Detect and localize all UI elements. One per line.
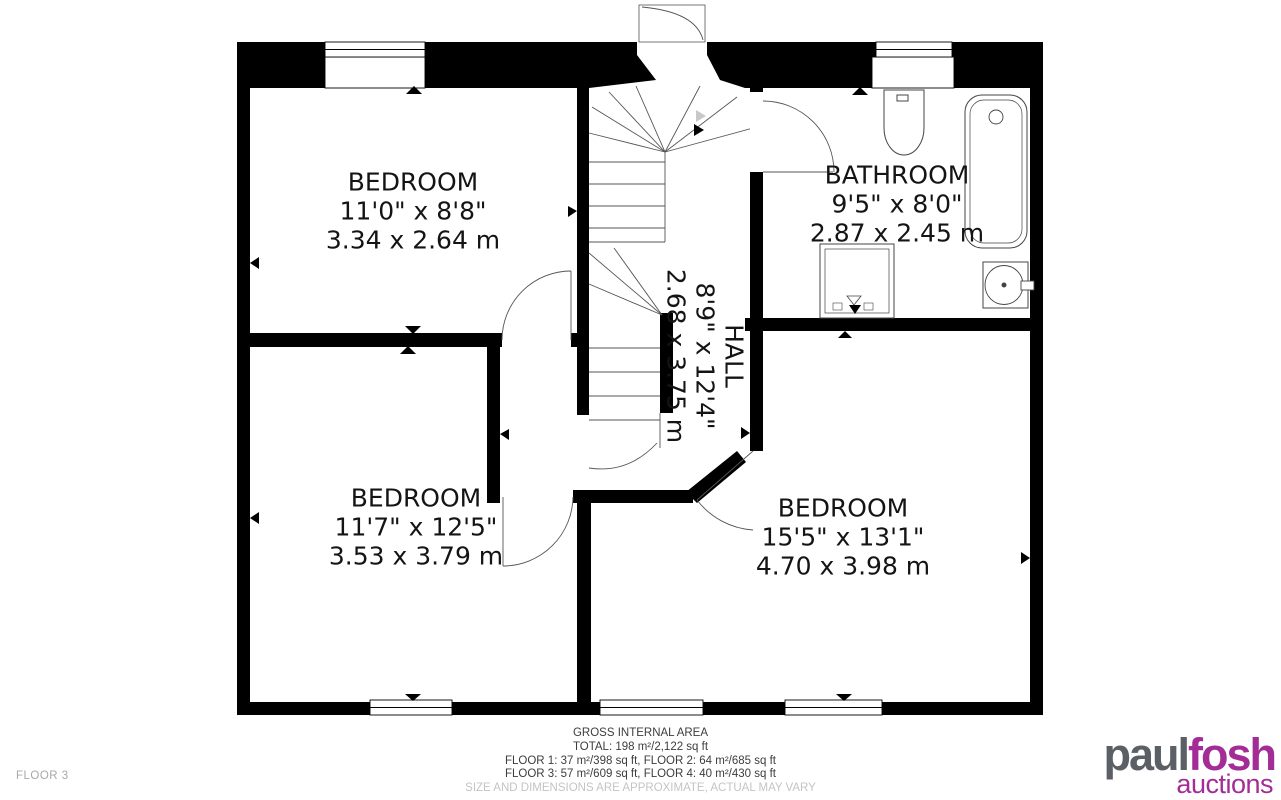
floor-plan-drawing	[0, 0, 1281, 800]
room-name: BEDROOM	[326, 168, 500, 197]
room-dims-metric: 4.70 x 3.98 m	[756, 552, 930, 581]
room-dims-imperial: 15'5" x 13'1"	[756, 523, 930, 552]
room-label-hall: HALL 8'9" x 12'4" 2.68 x 3.75 m	[662, 269, 749, 443]
room-dims-imperial: 8'9" x 12'4"	[691, 269, 720, 443]
area-summary-floors-2: FLOOR 3: 57 m²/609 sq ft, FLOOR 4: 40 m²…	[0, 768, 1281, 782]
window-bedroom-bottom-right-1	[600, 700, 703, 715]
door-bedroom-top-left	[502, 271, 571, 347]
stair-arrow-gray	[696, 110, 706, 122]
area-summary: GROSS INTERNAL AREA TOTAL: 198 m²/2,122 …	[0, 727, 1281, 796]
room-dims-imperial: 11'0" x 8'8"	[326, 197, 500, 226]
agency-logo: paulfosh auctions	[1103, 732, 1275, 798]
room-dims-metric: 2.68 x 3.75 m	[662, 269, 691, 443]
room-label-bathroom: BATHROOM 9'5" x 8'0" 2.87 x 2.45 m	[810, 161, 984, 248]
walls	[237, 42, 1043, 715]
room-name: BATHROOM	[810, 161, 984, 190]
area-summary-floors-1: FLOOR 1: 37 m²/398 sq ft, FLOOR 2: 64 m²…	[0, 755, 1281, 769]
toilet	[884, 90, 924, 155]
floor-label: FLOOR 3	[16, 770, 69, 782]
room-dims-metric: 2.87 x 2.45 m	[810, 219, 984, 248]
windows	[325, 42, 954, 715]
window-bedroom-top-left	[325, 42, 425, 88]
room-label-bedroom-bottom-left: BEDROOM 11'7" x 12'5" 3.53 x 3.79 m	[329, 484, 503, 571]
area-summary-disclaimer: SIZE AND DIMENSIONS ARE APPROXIMATE, ACT…	[0, 782, 1281, 796]
logo-part-paul: paul	[1103, 729, 1188, 780]
wash-basin	[983, 262, 1034, 308]
room-label-bedroom-top-left: BEDROOM 11'0" x 8'8" 3.34 x 2.64 m	[326, 168, 500, 255]
room-dims-imperial: 11'7" x 12'5"	[329, 513, 503, 542]
window-bedroom-bottom-right-2	[785, 700, 882, 715]
room-label-bedroom-bottom-right: BEDROOM 15'5" x 13'1" 4.70 x 3.98 m	[756, 494, 930, 581]
window-bedroom-bottom-left	[370, 700, 452, 715]
room-name: HALL	[720, 269, 749, 443]
door-stairhead	[639, 5, 705, 42]
area-summary-total: TOTAL: 198 m²/2,122 sq ft	[0, 741, 1281, 755]
window-bathroom	[872, 42, 954, 88]
area-summary-title: GROSS INTERNAL AREA	[0, 727, 1281, 741]
room-name: BEDROOM	[756, 494, 930, 523]
room-dims-metric: 3.53 x 3.79 m	[329, 542, 503, 571]
stair-direction-arrows	[694, 110, 706, 136]
room-name: BEDROOM	[329, 484, 503, 513]
door-bedroom-bottom-left	[500, 490, 573, 566]
room-dims-imperial: 9'5" x 8'0"	[810, 190, 984, 219]
shower	[820, 244, 894, 318]
room-dims-metric: 3.34 x 2.64 m	[326, 226, 500, 255]
